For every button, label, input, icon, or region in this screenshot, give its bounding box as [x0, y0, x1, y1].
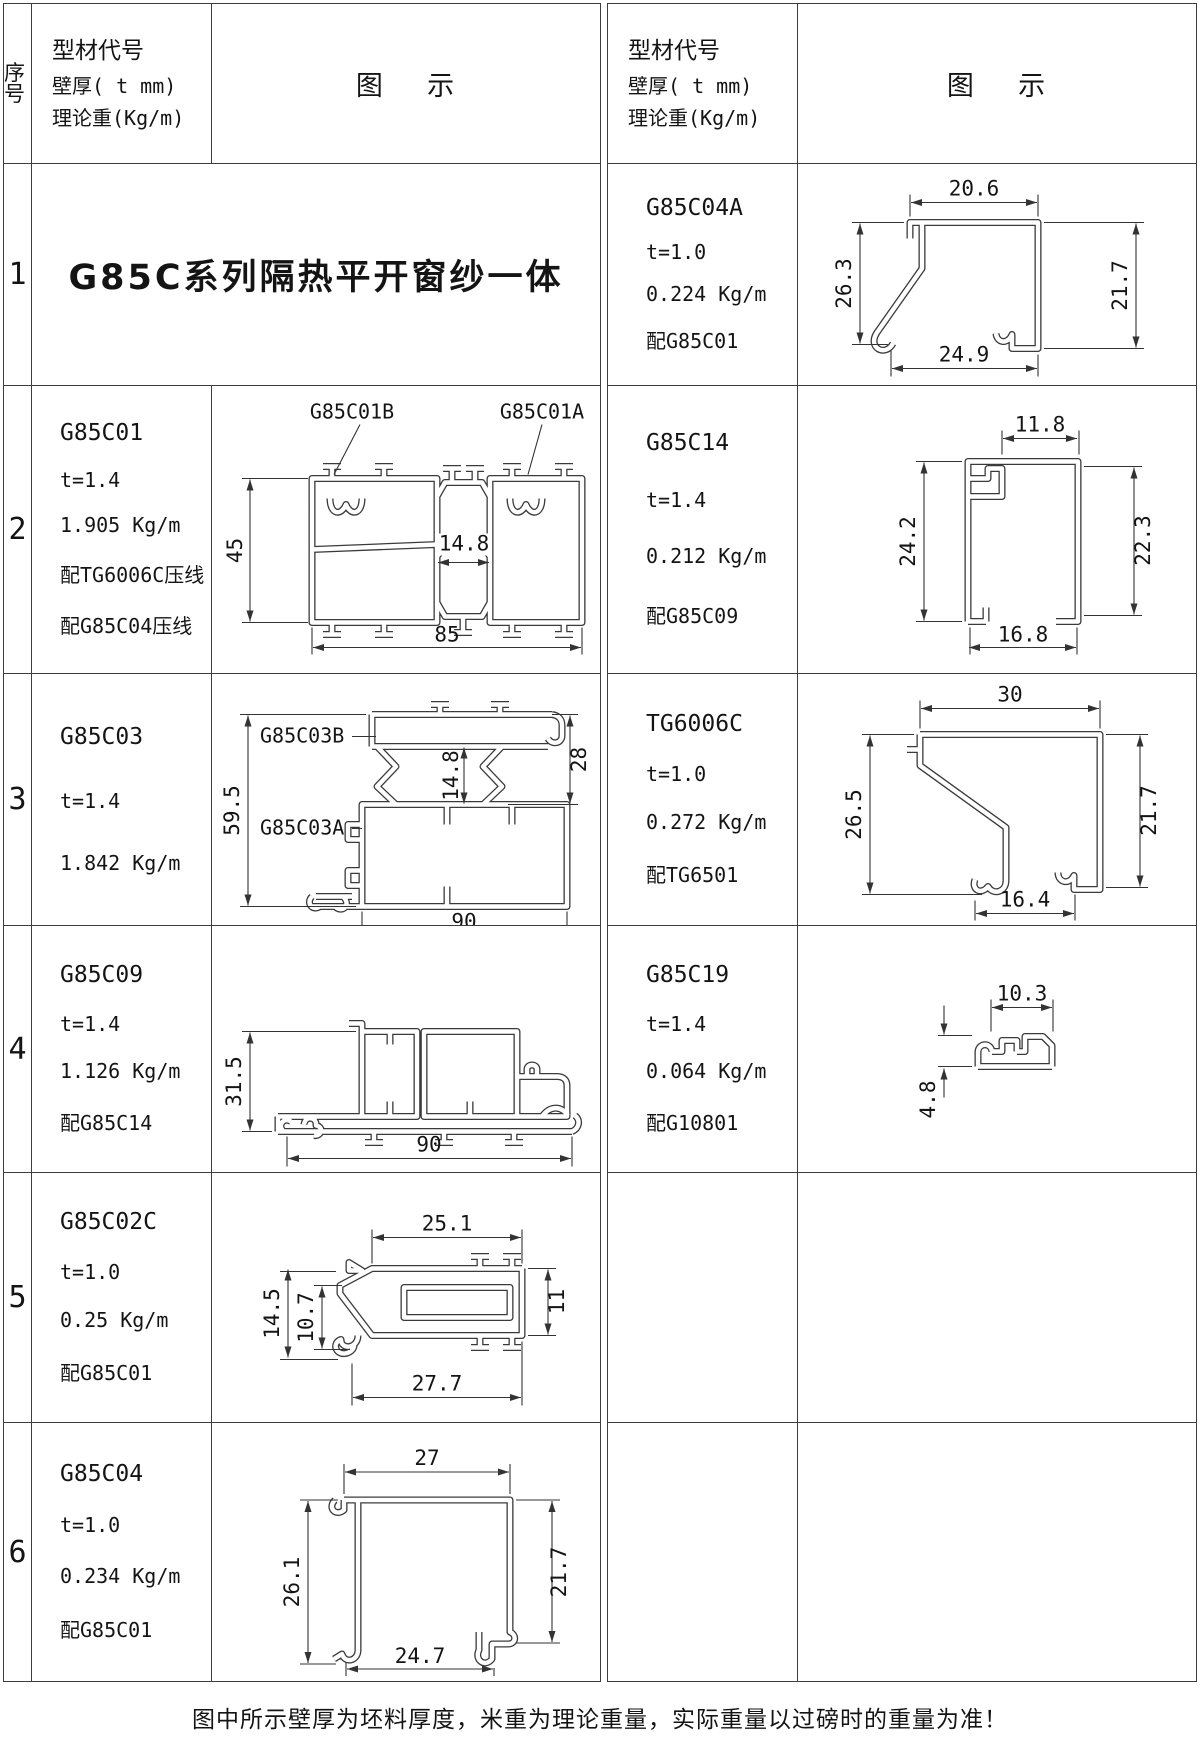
info-line: t=1.4 [646, 1012, 793, 1036]
info-line: 1.126 Kg/m [60, 1059, 207, 1083]
g85c19-drawing: 10.3 4.8 [798, 926, 1196, 1172]
info-header-cell-right: 型材代号壁厚( t mm)理论重(Kg/m) [608, 4, 798, 164]
row-6-info-cell: G85C04t=1.00.234 Kg/m配G85C01 [32, 1423, 212, 1681]
seq-header-cell: 序号 [4, 4, 32, 164]
dim-left: 14.5 [260, 1288, 284, 1339]
dim-left: 26.1 [280, 1557, 304, 1608]
row-2-number: 2 [4, 386, 32, 674]
sub-profile-label-a: G85C01A [500, 400, 584, 424]
dim-height: 59.5 [220, 785, 244, 836]
info-line: TG6006C [646, 711, 793, 737]
info-line: G85C02C [60, 1209, 207, 1235]
row-4-right-diagram: 10.3 4.8 [798, 926, 1196, 1173]
diagram-header-cell-left: 图 示 [212, 4, 600, 164]
row-2-right-info-cell: G85C14t=1.40.212 Kg/m配G85C09 [608, 386, 798, 674]
row-6-right-info-cell-empty [608, 1423, 798, 1681]
dim-left: 26.5 [842, 789, 866, 840]
dim-top: 10.3 [997, 982, 1048, 1006]
dim-inner: 10.7 [294, 1292, 318, 1343]
row-3-right-diagram: 30 26.5 21.7 16.4 [798, 674, 1196, 926]
dim-break: 14.8 [439, 750, 463, 801]
dim-top: 20.6 [949, 177, 1000, 201]
g85c14-drawing: 11.8 24.2 22.3 16.8 [798, 386, 1196, 673]
info-line: 配G85C14 [60, 1107, 207, 1136]
info-line: 1.905 Kg/m [60, 513, 207, 537]
info-line: 0.234 Kg/m [60, 1564, 207, 1588]
dim-right: 22.3 [1131, 515, 1155, 566]
info-line: 0.064 Kg/m [646, 1059, 793, 1083]
dim-height: 31.5 [222, 1056, 246, 1107]
row-3-left-diagram: G85C03B G85C03A 59.5 14.8 28 90 [212, 674, 600, 926]
info-line: 理论重(Kg/m) [628, 102, 797, 134]
row-6-number: 6 [4, 1423, 32, 1681]
g85c09-drawing: 31.5 90 [212, 926, 600, 1172]
info-line: G85C03 [60, 724, 207, 750]
row-3-number: 3 [4, 674, 32, 926]
info-line: 壁厚( t mm) [52, 70, 211, 102]
info-line: 0.272 Kg/m [646, 810, 793, 834]
dim-right: 21.7 [1137, 785, 1161, 836]
info-line: 配G10801 [646, 1107, 793, 1136]
dim-right: 21.7 [547, 1547, 571, 1598]
info-line: 配G85C01 [60, 1614, 207, 1643]
sub-profile-label-a: G85C03A [260, 816, 344, 840]
dim-bottom: 24.7 [395, 1644, 446, 1668]
dim-top: 27 [414, 1446, 439, 1470]
row-5-info-cell: G85C02Ct=1.00.25 Kg/m配G85C01 [32, 1173, 212, 1423]
dim-right: 11 [545, 1289, 569, 1314]
row-5-left-diagram: 25.1 14.5 10.7 11 27.7 [212, 1173, 600, 1423]
info-line: G85C01 [60, 420, 207, 446]
dim-top: 30 [997, 683, 1022, 707]
info-header-cell-left: 型材代号壁厚( t mm)理论重(Kg/m) [32, 4, 212, 164]
g85c01-drawing: G85C01B G85C01A 45 14.8 85 [212, 386, 600, 673]
info-line: t=1.0 [646, 762, 793, 786]
row-6-right-diagram-empty [798, 1423, 1196, 1681]
info-line: 配G85C04压线 [60, 610, 207, 639]
info-line: 0.224 Kg/m [646, 282, 793, 306]
dim-bottom: 27.7 [412, 1372, 463, 1396]
row-5-number: 5 [4, 1173, 32, 1423]
table-right-half: 型材代号壁厚( t mm)理论重(Kg/m) 图 示 G85C04At=1.00… [607, 3, 1197, 1682]
info-line: t=1.4 [60, 1012, 207, 1036]
dim-left: 26.3 [832, 258, 856, 309]
g85c02c-drawing: 25.1 14.5 10.7 11 27.7 [212, 1173, 600, 1422]
info-line: 1.842 Kg/m [60, 851, 207, 875]
row-4-left-diagram: 31.5 90 [212, 926, 600, 1173]
info-line: 配TG6501 [646, 859, 793, 888]
dim-left: 24.2 [896, 516, 920, 567]
info-line: 型材代号 [52, 33, 211, 70]
dim-width: 90 [416, 1133, 441, 1157]
info-line: G85C19 [646, 962, 793, 988]
info-line: t=1.4 [60, 468, 207, 492]
info-line: G85C04A [646, 195, 793, 221]
info-line: G85C04 [60, 1461, 207, 1487]
g85c03-drawing: G85C03B G85C03A 59.5 14.8 28 90 [212, 674, 600, 925]
dim-break: 14.8 [439, 532, 490, 556]
dim-right: 21.7 [1108, 260, 1132, 311]
info-line: G85C14 [646, 430, 793, 456]
g85c04a-drawing: 20.6 21.7 26.3 24.9 [798, 164, 1196, 385]
dim-bottom: 16.4 [1000, 888, 1051, 912]
row-1-number: 1 [4, 164, 32, 386]
info-line: 壁厚( t mm) [628, 70, 797, 102]
row-6-left-diagram: 27 26.1 21.7 24.7 [212, 1423, 600, 1681]
dim-width: 85 [434, 623, 459, 647]
dim-width: 90 [451, 910, 476, 926]
info-line: t=1.4 [646, 488, 793, 512]
info-line: 配G85C01 [60, 1357, 207, 1386]
info-line: 配TG6006C压线 [60, 559, 207, 588]
footer-note: 图中所示壁厚为坯料厚度，米重为理论重量，实际重量以过磅时的重量为准！ [3, 1700, 1197, 1734]
row-5-right-diagram-empty [798, 1173, 1196, 1423]
info-line: t=1.0 [60, 1513, 207, 1537]
info-line: 0.25 Kg/m [60, 1308, 207, 1332]
row-2-right-diagram: 11.8 24.2 22.3 16.8 [798, 386, 1196, 674]
sub-profile-label-b: G85C01B [310, 400, 394, 424]
dim-height: 45 [223, 538, 247, 563]
row-3-info-cell: G85C03t=1.41.842 Kg/m [32, 674, 212, 926]
g85c04-drawing: 27 26.1 21.7 24.7 [212, 1423, 600, 1681]
row-1-right-diagram: 20.6 21.7 26.3 24.9 [798, 164, 1196, 386]
row-4-right-info-cell: G85C19t=1.40.064 Kg/m配G10801 [608, 926, 798, 1173]
info-line: t=1.0 [646, 240, 793, 264]
dim-top: 11.8 [1015, 413, 1066, 437]
tg6006c-drawing: 30 26.5 21.7 16.4 [798, 674, 1196, 925]
info-line: 配G85C01 [646, 325, 793, 354]
row-2-left-diagram: G85C01B G85C01A 45 14.8 85 [212, 386, 600, 674]
info-line: G85C09 [60, 962, 207, 988]
info-line: 0.212 Kg/m [646, 544, 793, 568]
dim-top: 25.1 [422, 1212, 473, 1236]
catalog-page: 序号 型材代号壁厚( t mm)理论重(Kg/m) 图 示 1 G85C系列隔热… [0, 0, 1200, 1740]
info-line: t=1.4 [60, 789, 207, 813]
sub-profile-label-b: G85C03B [260, 724, 344, 748]
info-line: 型材代号 [628, 33, 797, 70]
row-4-info-cell: G85C09t=1.41.126 Kg/m配G85C14 [32, 926, 212, 1173]
row-5-right-info-cell-empty [608, 1173, 798, 1423]
dim-left: 4.8 [916, 1081, 940, 1119]
table-left-half: 序号 型材代号壁厚( t mm)理论重(Kg/m) 图 示 1 G85C系列隔热… [3, 3, 601, 1682]
info-line: 理论重(Kg/m) [52, 102, 211, 134]
info-line: 配G85C09 [646, 600, 793, 629]
dim-right: 28 [567, 747, 591, 772]
row-3-right-info-cell: TG6006Ct=1.00.272 Kg/m配TG6501 [608, 674, 798, 926]
info-line: t=1.0 [60, 1260, 207, 1284]
row-1-right-info-cell: G85C04At=1.00.224 Kg/m配G85C01 [608, 164, 798, 386]
row-4-number: 4 [4, 926, 32, 1173]
dim-bottom: 16.8 [998, 623, 1049, 647]
diagram-header-cell-right: 图 示 [798, 4, 1196, 164]
series-title-cell: G85C系列隔热平开窗纱一体 [32, 164, 600, 386]
profile-table: 序号 型材代号壁厚( t mm)理论重(Kg/m) 图 示 1 G85C系列隔热… [3, 3, 1197, 1682]
dim-bottom: 24.9 [939, 343, 990, 367]
row-2-info-cell: G85C01t=1.41.905 Kg/m配TG6006C压线配G85C04压线 [32, 386, 212, 674]
